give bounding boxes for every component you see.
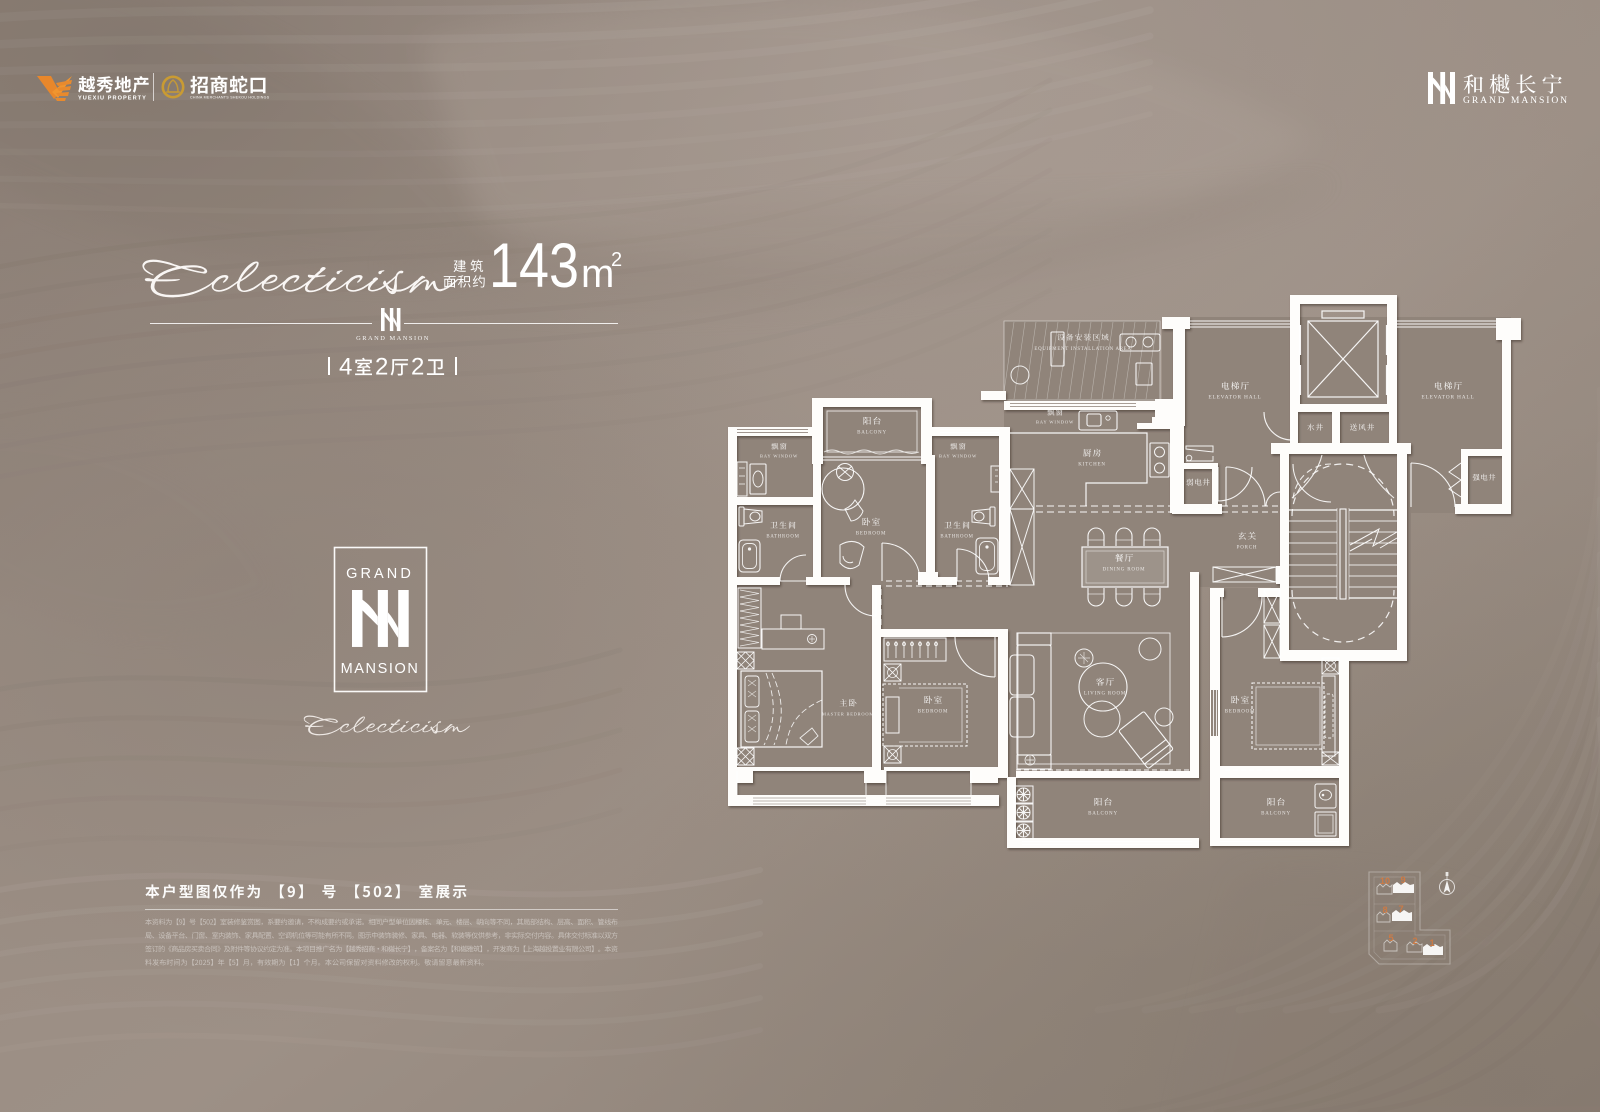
svg-text:ELEVATOR HALL: ELEVATOR HALL — [1208, 395, 1261, 401]
svg-text:PORCH: PORCH — [1237, 546, 1258, 551]
svg-text:1: 1 — [1429, 938, 1434, 948]
svg-text:GRAND: GRAND — [346, 566, 414, 582]
svg-text:2: 2 — [611, 249, 622, 271]
svg-text:2: 2 — [1412, 936, 1417, 946]
svg-text:BEDROOM: BEDROOM — [1225, 710, 1256, 715]
svg-text:BALCONY: BALCONY — [1261, 812, 1291, 817]
svg-text:LIVING ROOM: LIVING ROOM — [1084, 692, 1126, 697]
svg-text:GRAND MANSION: GRAND MANSION — [1463, 95, 1569, 106]
svg-text:BEDROOM: BEDROOM — [918, 710, 949, 715]
svg-text:10: 10 — [1380, 876, 1390, 886]
svg-text:9: 9 — [1400, 875, 1405, 885]
svg-text:7: 7 — [1398, 904, 1403, 914]
svg-text:BAY WINDOW: BAY WINDOW — [760, 454, 798, 459]
svg-text:143: 143 — [489, 231, 579, 301]
svg-text:BATHROOM: BATHROOM — [940, 535, 973, 540]
svg-text:2: 2 — [411, 354, 424, 381]
svg-text:EQUIPMENT INSTALLATION AREA: EQUIPMENT INSTALLATION AREA — [1034, 347, 1131, 352]
svg-text:BEDROOM: BEDROOM — [856, 532, 887, 537]
svg-text:DINING ROOM: DINING ROOM — [1103, 568, 1146, 573]
svg-text:BAY WINDOW: BAY WINDOW — [939, 454, 977, 459]
svg-text:CHINA MERCHANTS SHEKOU HOLDING: CHINA MERCHANTS SHEKOU HOLDINGS — [190, 96, 270, 100]
svg-text:GRAND MANSION: GRAND MANSION — [356, 335, 430, 342]
svg-text:BATHROOM: BATHROOM — [766, 535, 799, 540]
svg-text:m: m — [581, 252, 614, 296]
svg-text:KITCHEN: KITCHEN — [1078, 463, 1106, 468]
svg-text:BALCONY: BALCONY — [1088, 812, 1118, 817]
svg-text:YUEXIU PROPERTY: YUEXIU PROPERTY — [78, 96, 147, 102]
svg-text:BALCONY: BALCONY — [857, 431, 887, 436]
svg-text:4: 4 — [339, 354, 352, 381]
svg-text:8: 8 — [1382, 905, 1387, 915]
svg-text:ELEVATOR HALL: ELEVATOR HALL — [1421, 395, 1474, 401]
svg-text:5: 5 — [1388, 933, 1393, 943]
svg-text:2: 2 — [375, 354, 388, 381]
svg-text:MASTER BEDROOM: MASTER BEDROOM — [822, 712, 874, 717]
svg-text:MANSION: MANSION — [341, 661, 420, 677]
svg-text:BAY WINDOW: BAY WINDOW — [1036, 420, 1074, 425]
